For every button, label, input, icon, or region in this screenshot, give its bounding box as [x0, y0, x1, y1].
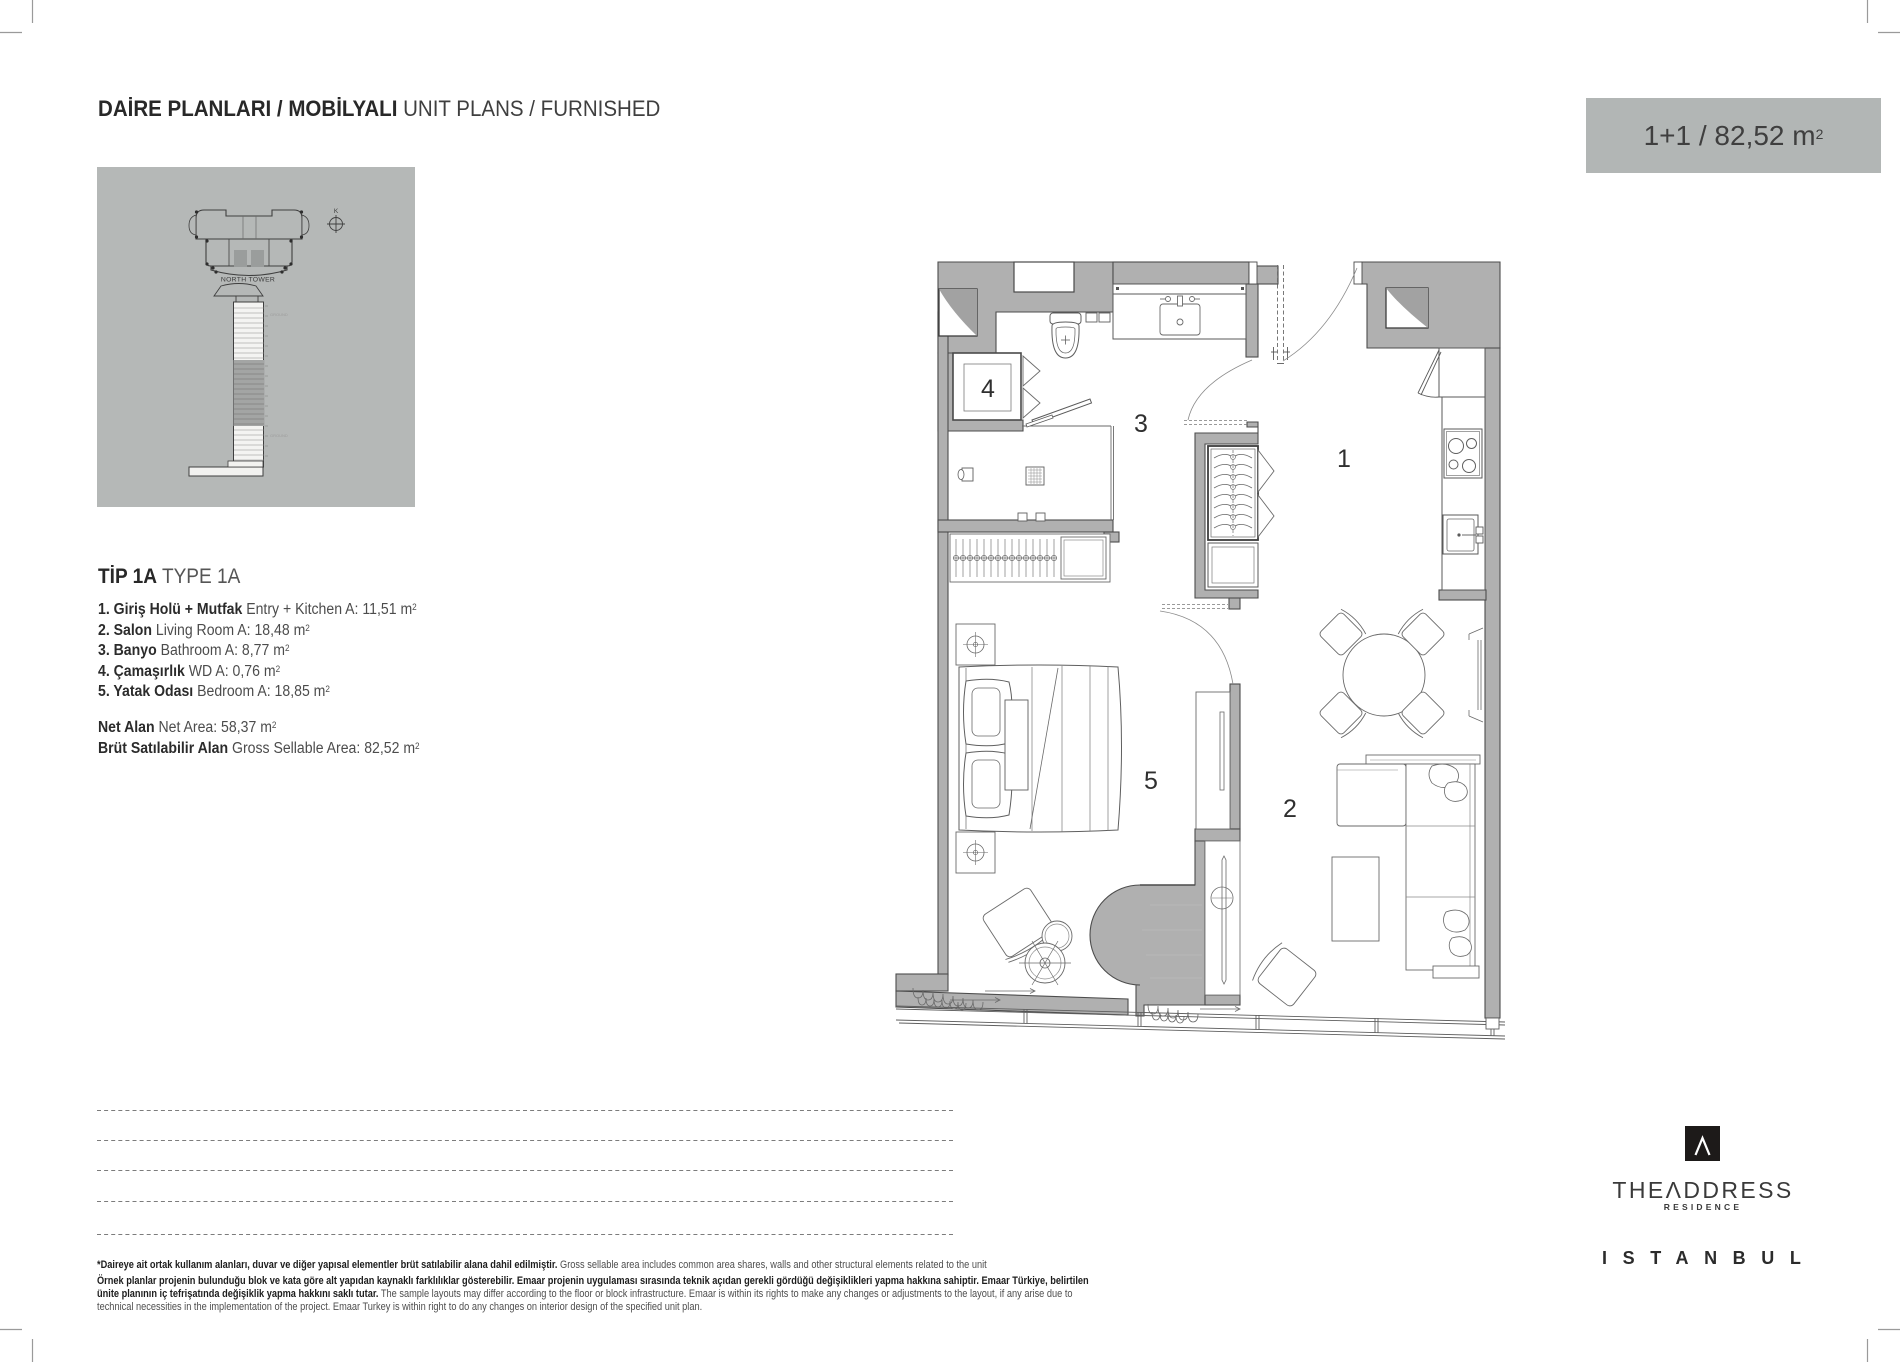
svg-text:5: 5 — [1144, 767, 1158, 795]
svg-text:GROUND: GROUND — [270, 312, 288, 317]
svg-text:NORTH TOWER: NORTH TOWER — [221, 277, 275, 284]
svg-text:3: 3 — [1134, 410, 1148, 438]
svg-text:1: 1 — [1337, 445, 1351, 473]
svg-text:4: 4 — [981, 375, 995, 403]
svg-text:K: K — [334, 208, 339, 215]
svg-text:GROUND: GROUND — [270, 433, 288, 438]
svg-text:2: 2 — [1283, 795, 1297, 823]
